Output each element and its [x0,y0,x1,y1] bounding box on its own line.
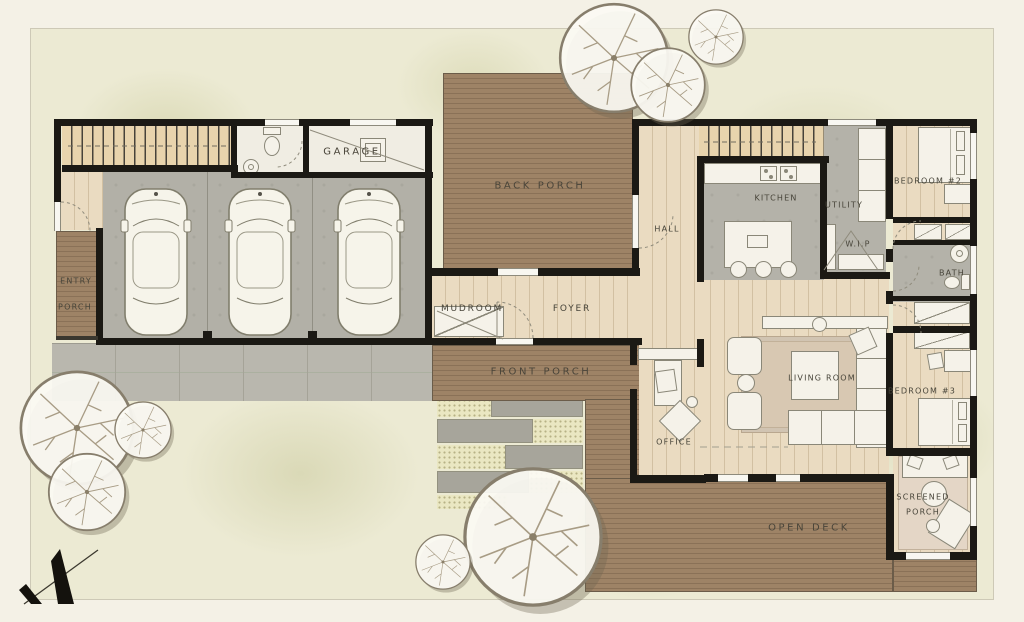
wall-segment [748,474,776,482]
room-label-open-deck: OPEN DECK [768,523,850,534]
room-label-bedroom3: BEDROOM #3 [888,387,956,396]
pillow-icon [956,131,965,151]
wall-segment [303,126,309,178]
bed-sheet-line [950,129,951,181]
wall-segment [820,163,827,223]
kitchen-stairs [699,126,824,156]
burner-icon [769,175,773,179]
pillow-icon [958,424,967,442]
wall-segment [886,448,977,456]
walkway-slab [505,445,583,469]
wall-segment [54,119,61,202]
burner-icon [764,169,768,173]
chair-icon [655,369,678,394]
wall-segment [432,268,498,276]
room-label-back-porch: BACK PORCH [494,181,585,192]
window [970,133,977,179]
garage-bay-line [312,172,313,338]
wall-segment [96,228,103,345]
floor-plan: GARAGE ENTRY PORCH BACK PORCH HALL KITCH… [0,0,1024,622]
toilet-icon [263,127,281,135]
room-label-hall: HALL [654,225,679,234]
room-label-office: OFFICE [656,438,692,447]
cooktop-icon [760,166,777,181]
wall-segment [886,291,893,304]
wall-segment [820,272,890,279]
room-label-kitchen: KITCHEN [754,194,797,203]
chair-icon [927,352,945,370]
room-label-wip: W.I.P [845,240,870,249]
room-label-screened-porch: PORCH [906,508,940,517]
cooktop-icon [780,166,797,181]
wall-segment [96,338,436,345]
door-opening [496,338,533,345]
driveway [52,343,437,401]
wall-segment [893,240,970,245]
pillow-icon [958,402,967,420]
burner-icon [784,169,788,173]
armchair-icon [727,337,762,375]
wall-segment [538,268,640,276]
open-deck-east [893,556,977,592]
back-porch-deck [443,73,633,272]
window [970,478,977,526]
wall-segment [308,331,317,339]
wall-segment [632,248,639,276]
room-label-foyer: FOYER [553,304,591,314]
decor-bowl-icon [812,317,827,332]
wall-segment [632,119,639,195]
closet-icon [914,224,942,240]
wall-segment [630,345,637,365]
side-table-icon [686,396,698,408]
wall-segment [231,172,433,178]
window [265,119,299,126]
sink-drain-icon [956,250,963,257]
wall-segment [886,119,893,219]
walkway-grass-joint [437,445,505,469]
stool-icon [780,261,797,278]
wall-segment [203,331,212,339]
wall-segment [697,339,704,367]
desk-icon [944,350,972,372]
shower-icon [914,302,970,324]
sink-drain-icon [248,164,254,170]
open-deck-surface [585,478,893,592]
wall-segment [893,326,970,333]
garage-bay-line [207,172,208,338]
porch-edge [56,336,98,340]
wall-segment [893,296,970,301]
dresser-icon [944,184,972,204]
walkway-grass-joint [437,495,507,509]
wall-segment [632,119,977,126]
burner-icon [789,175,793,179]
walkway-slab [437,419,533,443]
office-shelf [638,348,698,360]
wall-segment [886,249,893,262]
wall-segment [697,156,829,163]
window [970,246,977,294]
wall-segment [62,165,238,172]
wall-segment [630,389,637,477]
wall-segment [886,474,894,560]
toilet-icon [944,276,960,289]
wall-segment [533,338,642,345]
pillow-icon [956,155,965,175]
wall-segment [820,220,827,279]
wall-segment [425,119,432,345]
wall-segment [630,475,706,483]
door-opening [54,202,61,231]
room-label-front-porch: FRONT PORCH [491,367,592,378]
wall-segment [697,156,704,282]
walkway-grass-joint [529,471,583,493]
stool-icon [755,261,772,278]
entry-landing-floor [61,168,106,230]
garage-stairs [62,126,235,165]
closet-icon [914,331,970,349]
side-table-icon [926,519,940,533]
room-label-bedroom2: BEDROOM #2 [894,177,962,186]
stool-icon [730,261,747,278]
wall-segment [436,338,496,345]
walkway-slab [437,471,529,493]
window [776,474,800,482]
sectional-sofa-icon [788,410,888,445]
armchair-icon [727,392,762,430]
pantry-shelf [838,254,884,270]
window [906,552,950,560]
room-label-garage: GARAGE [323,147,380,158]
room-label-mudroom: MUDROOM [441,304,503,314]
bed-sheet-line [952,400,953,444]
window [350,119,396,126]
room-label-entry-porch: PORCH [58,303,92,312]
room-label-entry: ENTRY [60,277,92,286]
room-label-utility: UTILITY [825,201,863,210]
closet-icon [945,224,972,240]
wall-segment [800,474,893,482]
wall-segment [704,474,718,482]
door-opening [632,195,639,248]
side-table-icon [737,374,755,392]
door-opening [498,268,538,276]
room-label-living-room: LIVING ROOM [788,374,856,383]
window [718,474,748,482]
garage-floor [103,172,425,338]
wall-segment [893,217,970,223]
window [970,350,977,396]
room-label-bath: BATH [939,269,965,278]
toilet-icon [264,136,280,156]
room-label-screened: SCREENED [896,493,949,502]
window [828,119,876,126]
island-sink-icon [747,235,768,248]
walkway-grass-joint [533,419,583,443]
